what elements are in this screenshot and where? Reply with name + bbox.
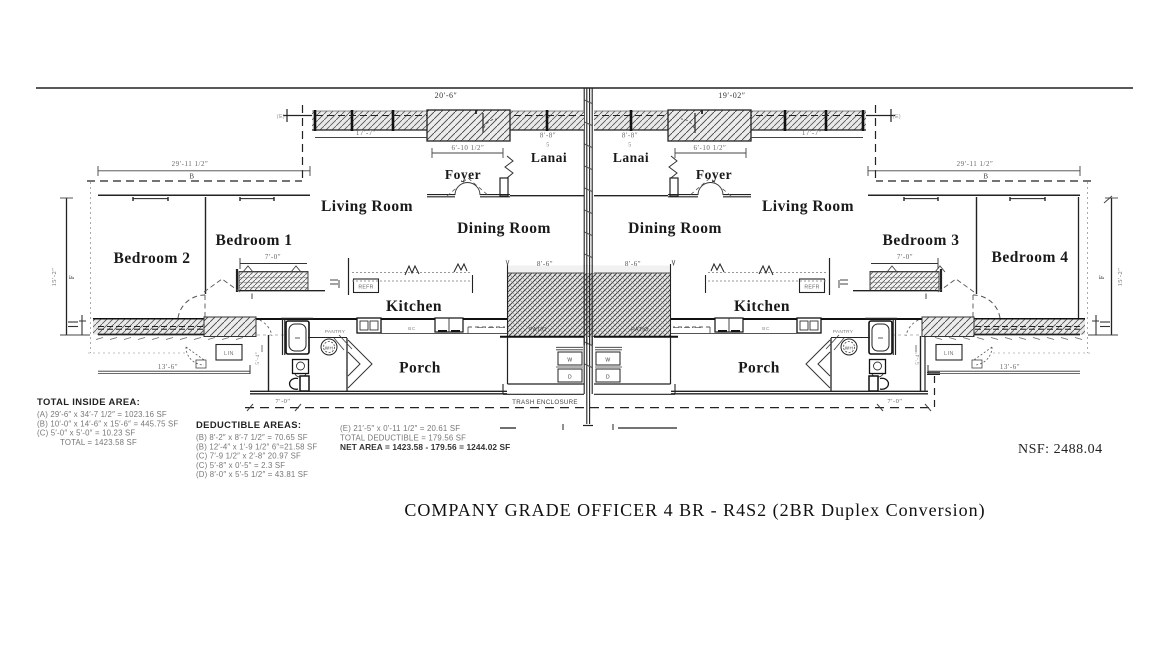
- svg-text:F: F: [1098, 275, 1106, 279]
- svg-text:NET AREA = 1423.58 - 179.56 =: NET AREA = 1423.58 - 179.56 = 1244.02 SF: [340, 442, 510, 452]
- svg-text:8′-8″: 8′-8″: [540, 132, 556, 140]
- svg-text:(E): (E): [277, 114, 285, 120]
- svg-text:(B) 12′-4″ x 1′-9 1/2″ 6″=21.: (B) 12′-4″ x 1′-9 1/2″ 6″=21.58 SF: [196, 442, 317, 451]
- svg-text:6′-10 1/2″: 6′-10 1/2″: [452, 144, 485, 152]
- svg-text:29′-11 1/2″: 29′-11 1/2″: [957, 160, 994, 168]
- svg-text:B: B: [983, 173, 988, 181]
- svg-text:17′-7″: 17′-7″: [802, 129, 822, 137]
- svg-text:Bedroom 1: Bedroom 1: [216, 232, 293, 249]
- svg-text:29′-11 1/2″: 29′-11 1/2″: [172, 160, 209, 168]
- svg-text:8′-6″: 8′-6″: [537, 260, 553, 268]
- svg-text:REFR: REFR: [358, 285, 373, 291]
- svg-text:7′-0″: 7′-0″: [275, 398, 290, 405]
- svg-text:Bedroom 3: Bedroom 3: [883, 232, 960, 249]
- svg-text:6′-10 1/2″: 6′-10 1/2″: [694, 144, 727, 152]
- svg-text:F: F: [68, 275, 76, 279]
- svg-text:Kitchen: Kitchen: [734, 298, 790, 315]
- svg-text:(B) 8′-2″ x 8′-7 1/2″ = 70.65: (B) 8′-2″ x 8′-7 1/2″ = 70.65 SF: [196, 433, 308, 442]
- svg-text:19′-02″: 19′-02″: [718, 91, 745, 100]
- svg-text:W: W: [605, 358, 610, 364]
- svg-text:7′-0″: 7′-0″: [265, 253, 281, 261]
- svg-text:(A) 29′-6″ x 34′-7 1/2″ = 102: (A) 29′-6″ x 34′-7 1/2″ = 1023.16 SF: [37, 410, 167, 419]
- svg-text:PATIO: PATIO: [631, 327, 649, 333]
- svg-text:(C) 5′-0″ x 5′-0″ = 10.23: (C) 5′-0″ x 5′-0″ = 10.23 SF: [37, 429, 135, 438]
- svg-text:TRASH ENCLOSURE: TRASH ENCLOSURE: [512, 399, 578, 406]
- svg-text:20′-6″: 20′-6″: [435, 91, 458, 100]
- svg-text:Kitchen: Kitchen: [386, 298, 442, 315]
- svg-text:7′-0″: 7′-0″: [897, 253, 913, 261]
- svg-text:D: D: [606, 375, 610, 381]
- svg-text:5′-4″: 5′-4″: [915, 351, 921, 364]
- svg-text:REFR: REFR: [804, 285, 819, 291]
- svg-text:(D) 8′-0″ x 5′-5 1/2″ = 43.81: (D) 8′-0″ x 5′-5 1/2″ = 43.81 SF: [196, 470, 308, 479]
- svg-text:Bedroom 2: Bedroom 2: [114, 250, 191, 267]
- svg-text:(E) 21′-5″ x 0′-11 1/2″ = 20.: (E) 21′-5″ x 0′-11 1/2″ = 20.61 SF: [340, 424, 460, 433]
- svg-text:PANTRY: PANTRY: [833, 329, 854, 335]
- svg-text:B: B: [189, 173, 194, 181]
- svg-text:PATIO: PATIO: [529, 327, 547, 333]
- svg-text:Dining Room: Dining Room: [457, 220, 551, 237]
- svg-text:W: W: [567, 358, 572, 364]
- svg-text:BC: BC: [408, 326, 416, 332]
- svg-text:(B) 10′-0″ x 14′-6″ x 15′-6″: (B) 10′-0″ x 14′-6″ x 15′-6″ = 445.75 SF: [37, 419, 178, 428]
- svg-text:Lanai: Lanai: [531, 150, 567, 165]
- svg-text:17′-7″: 17′-7″: [356, 129, 376, 137]
- svg-text:(C) 5′-8″ x 0′-5″ = 2.3 S: (C) 5′-8″ x 0′-5″ = 2.3 SF: [196, 461, 285, 470]
- svg-text:Porch: Porch: [399, 360, 441, 377]
- svg-text:WH: WH: [325, 346, 334, 351]
- svg-text:8′-8″: 8′-8″: [622, 132, 638, 140]
- svg-text:15′-2″: 15′-2″: [1117, 267, 1124, 286]
- svg-text:LIN: LIN: [944, 351, 954, 357]
- svg-text:Porch: Porch: [738, 360, 780, 377]
- svg-text:Foyer: Foyer: [445, 167, 481, 182]
- svg-text:Lanai: Lanai: [613, 150, 649, 165]
- svg-text:D: D: [568, 375, 572, 381]
- svg-text:BC: BC: [762, 326, 770, 332]
- svg-text:DEDUCTIBLE AREAS:: DEDUCTIBLE AREAS:: [196, 419, 301, 430]
- svg-text:WH: WH: [845, 346, 854, 351]
- svg-text:13′-6″: 13′-6″: [1000, 363, 1020, 371]
- svg-text:Bedroom 4: Bedroom 4: [992, 249, 1069, 266]
- svg-text:5: 5: [628, 143, 632, 149]
- svg-text:TOTAL = 1423.58 SF: TOTAL = 1423.58 SF: [60, 438, 137, 447]
- svg-text:Dining Room: Dining Room: [628, 220, 722, 237]
- svg-text:8′-6″: 8′-6″: [625, 260, 641, 268]
- svg-text:(C) 7′-9 1/2″ x 2′-8″ 20.97: (C) 7′-9 1/2″ x 2′-8″ 20.97 SF: [196, 452, 301, 461]
- svg-text:5′-4″: 5′-4″: [255, 351, 261, 364]
- svg-text:(E): (E): [893, 114, 901, 120]
- svg-text:Foyer: Foyer: [696, 167, 732, 182]
- svg-text:Living Room: Living Room: [321, 198, 413, 215]
- svg-text:7′-0″: 7′-0″: [887, 398, 902, 405]
- svg-text:TOTAL INSIDE AREA:: TOTAL INSIDE AREA:: [37, 396, 140, 407]
- svg-text:PANTRY: PANTRY: [325, 329, 346, 335]
- svg-text:NSF: 2488.04: NSF: 2488.04: [1018, 442, 1103, 457]
- svg-text:LIN: LIN: [224, 351, 234, 357]
- svg-text:15′-2″: 15′-2″: [51, 267, 58, 286]
- svg-text:COMPANY GRADE OFFICER 4 BR - R: COMPANY GRADE OFFICER 4 BR - R4S2 (2BR D…: [404, 500, 985, 521]
- svg-text:13′-6″: 13′-6″: [158, 363, 178, 371]
- svg-text:5: 5: [546, 143, 550, 149]
- svg-text:Living Room: Living Room: [762, 198, 854, 215]
